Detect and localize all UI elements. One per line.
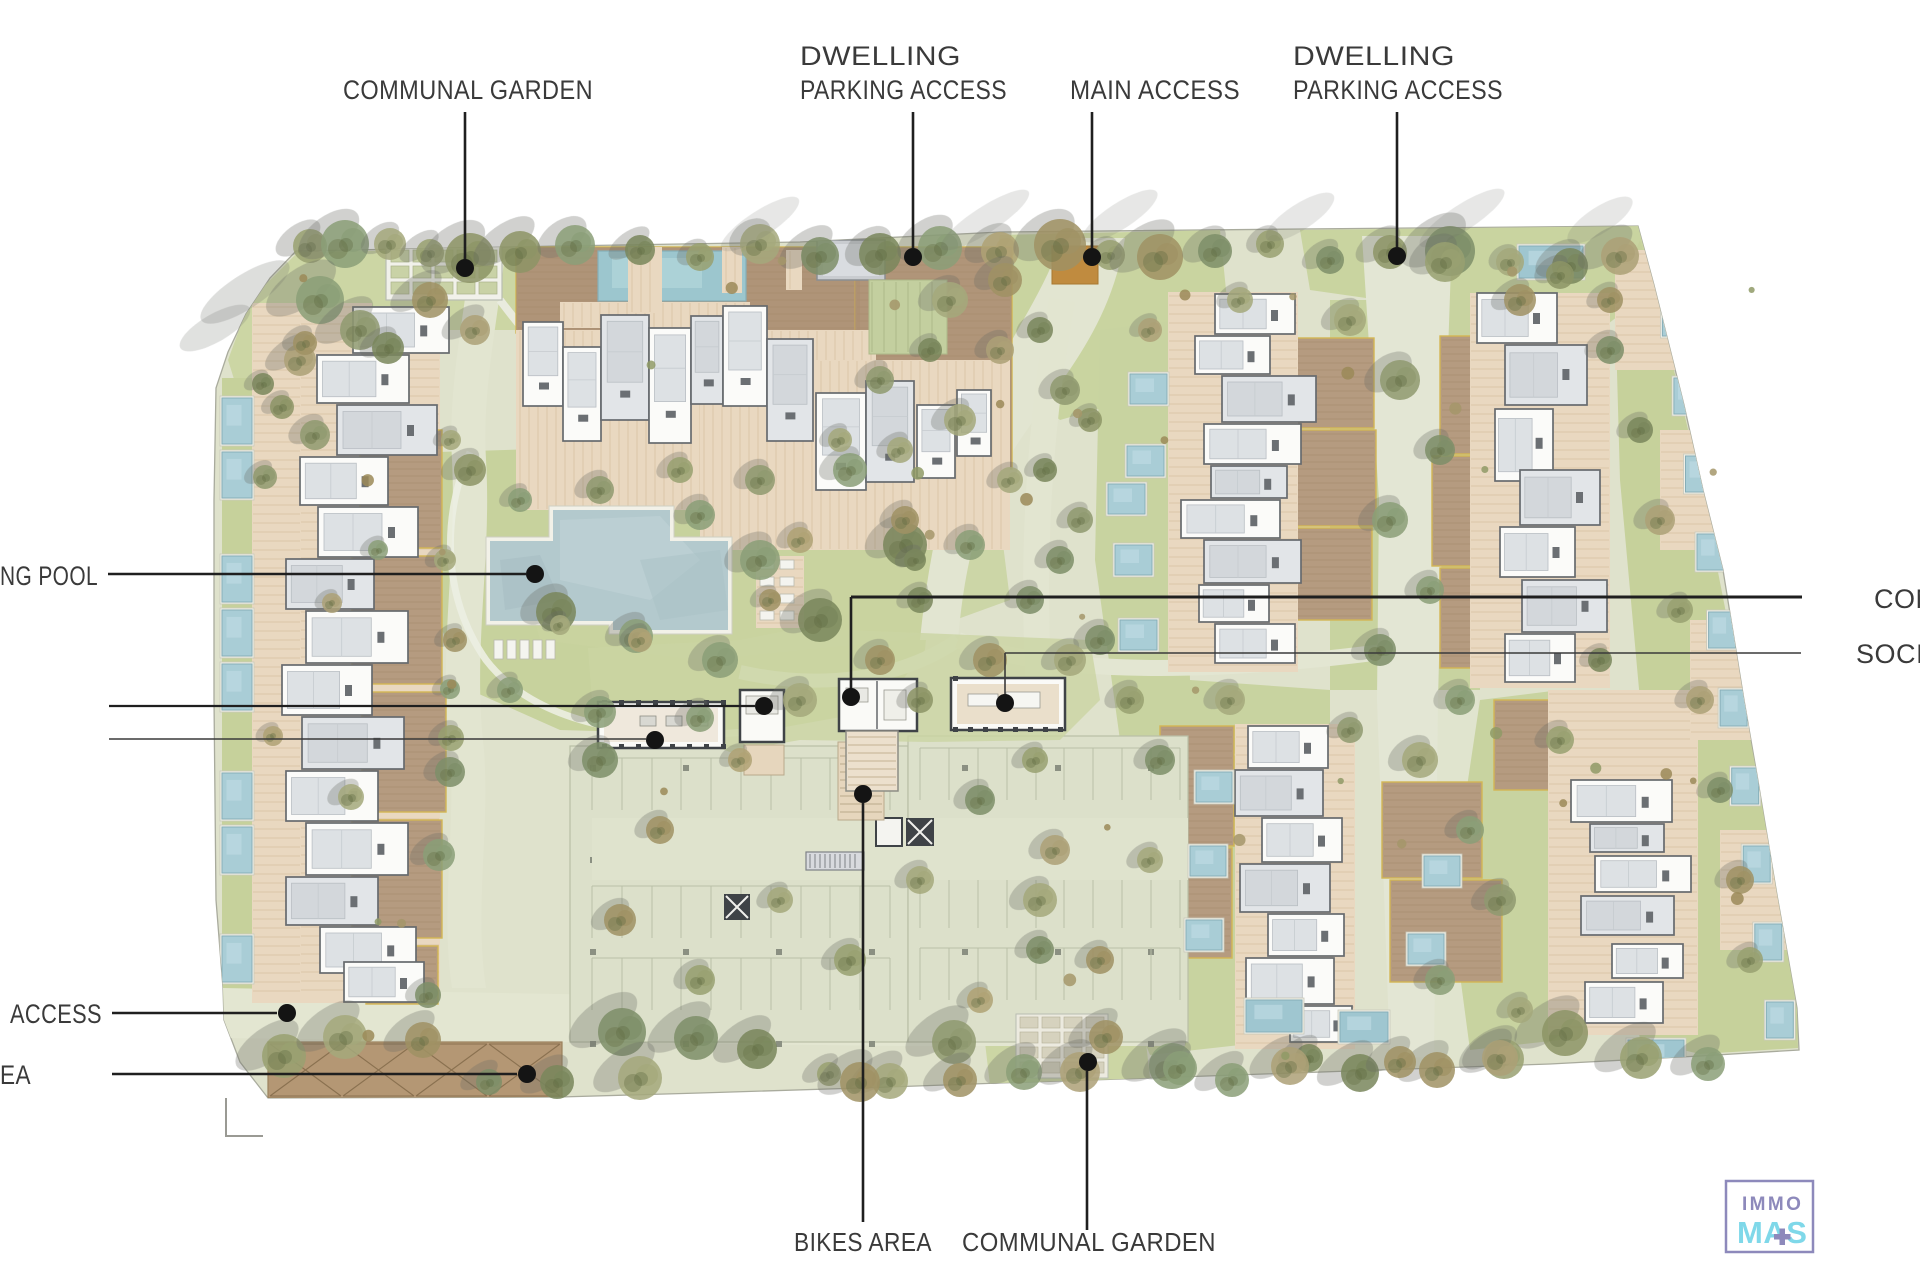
svg-text:BIKES AREA: BIKES AREA: [794, 1227, 932, 1257]
svg-text:COMMUNAL GARDEN: COMMUNAL GARDEN: [962, 1227, 1216, 1257]
svg-text:DWELLING: DWELLING: [800, 41, 961, 71]
svg-text:COMMUNAL GARDEN: COMMUNAL GARDEN: [343, 75, 593, 105]
svg-text:PARKING ACCESS: PARKING ACCESS: [800, 75, 1007, 105]
svg-text:IMMO: IMMO: [1742, 1194, 1803, 1215]
svg-text:PARKING ACCESS: PARKING ACCESS: [1293, 75, 1503, 105]
svg-text:ACCESS: ACCESS: [10, 999, 102, 1029]
svg-text:MAIN ACCESS: MAIN ACCESS: [1070, 75, 1240, 105]
svg-text:NG POOL: NG POOL: [0, 561, 98, 591]
svg-text:CONCIER: CONCIER: [1874, 584, 1920, 614]
svg-text:MAS: MAS: [1737, 1215, 1807, 1250]
svg-text:DWELLING: DWELLING: [1293, 41, 1455, 71]
svg-text:EA: EA: [0, 1060, 31, 1090]
svg-text:SOCIAL: SOCIAL: [1856, 639, 1920, 669]
